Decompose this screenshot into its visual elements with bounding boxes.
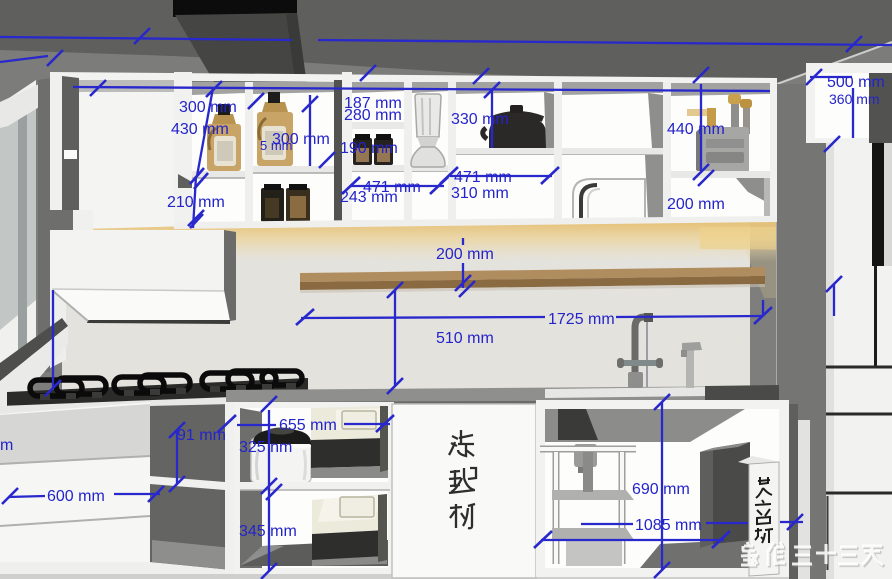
svg-text:280 mm: 280 mm	[344, 107, 402, 124]
svg-text:5 mm: 5 mm	[260, 138, 293, 153]
svg-text:471 mm: 471 mm	[363, 179, 421, 196]
svg-text:1725 mm: 1725 mm	[548, 311, 615, 328]
svg-text:471 mm: 471 mm	[454, 169, 512, 186]
svg-text:m: m	[0, 437, 13, 454]
svg-text:190 mm: 190 mm	[340, 140, 398, 157]
svg-text:690 mm: 690 mm	[632, 481, 690, 498]
svg-text:345 mm: 345 mm	[239, 523, 297, 540]
svg-text:310 mm: 310 mm	[451, 185, 509, 202]
svg-text:600 mm: 600 mm	[47, 488, 105, 505]
svg-text:1085 mm: 1085 mm	[635, 517, 702, 534]
svg-text:655 mm: 655 mm	[279, 417, 337, 434]
svg-text:200 mm: 200 mm	[667, 196, 725, 213]
svg-text:300 mm: 300 mm	[179, 99, 237, 116]
svg-text:200 mm: 200 mm	[436, 246, 494, 263]
svg-text:500 mm: 500 mm	[827, 74, 885, 91]
svg-text:430 mm: 430 mm	[171, 121, 229, 138]
svg-text:325 nm: 325 nm	[239, 439, 292, 456]
svg-text:91 mm: 91 mm	[177, 427, 226, 444]
svg-text:510 mm: 510 mm	[436, 330, 494, 347]
svg-text:440 mm: 440 mm	[667, 121, 725, 138]
svg-text:210 mm: 210 mm	[167, 194, 225, 211]
svg-text:330 mm: 330 mm	[451, 111, 509, 128]
svg-text:360 mm: 360 mm	[829, 91, 880, 107]
